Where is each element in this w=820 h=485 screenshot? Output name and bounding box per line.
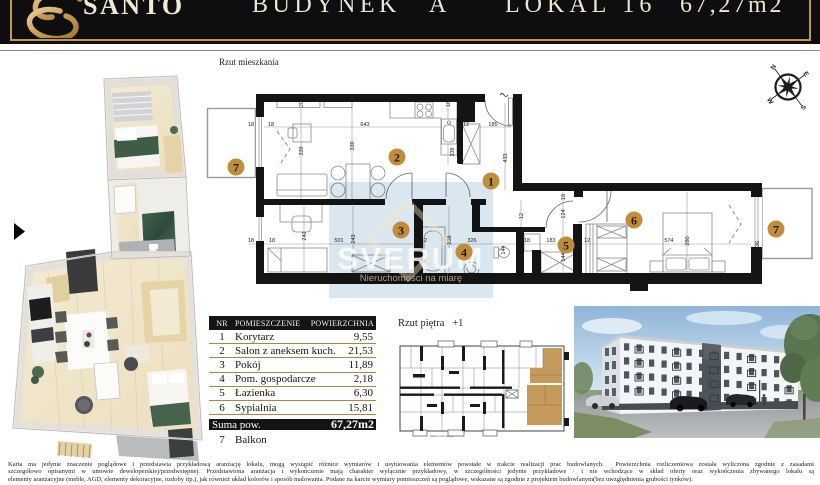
svg-text:5: 5 (563, 239, 569, 253)
svg-text:3: 3 (398, 224, 404, 238)
svg-text:12: 12 (519, 213, 525, 219)
svg-text:574: 574 (664, 238, 673, 244)
svg-text:339: 339 (350, 141, 356, 150)
svg-text:12: 12 (574, 238, 580, 244)
svg-text:Nieruchomości na miarę: Nieruchomości na miarę (360, 273, 462, 284)
svg-text:4: 4 (461, 246, 467, 260)
svg-text:280: 280 (685, 236, 691, 245)
svg-text:144: 144 (561, 252, 567, 261)
svg-text:E: E (801, 71, 810, 79)
svg-text:18: 18 (268, 122, 274, 128)
svg-text:20: 20 (299, 101, 305, 107)
svg-text:klatka schodowa: klatka schodowa (430, 434, 454, 438)
svg-text:339: 339 (299, 146, 305, 155)
svg-text:183: 183 (546, 238, 555, 244)
svg-text:2: 2 (394, 151, 400, 165)
svg-text:W: W (765, 97, 775, 107)
svg-text:18: 18 (524, 238, 530, 244)
svg-text:36: 36 (755, 241, 761, 247)
svg-text:242: 242 (302, 231, 308, 240)
svg-text:1: 1 (488, 175, 494, 189)
svg-text:18: 18 (248, 238, 254, 244)
svg-text:7: 7 (233, 161, 239, 175)
svg-text:12: 12 (584, 238, 590, 244)
svg-text:18: 18 (446, 101, 452, 107)
svg-text:643: 643 (360, 122, 369, 128)
svg-text:124: 124 (561, 209, 567, 218)
svg-text:18: 18 (561, 194, 567, 200)
svg-text:185: 185 (488, 122, 497, 128)
svg-text:18: 18 (269, 238, 275, 244)
svg-text:7: 7 (773, 223, 779, 237)
svg-text:6: 6 (631, 214, 637, 228)
svg-text:S: S (800, 103, 809, 111)
svg-text:144: 144 (501, 245, 507, 254)
svg-text:433: 433 (503, 153, 509, 162)
svg-text:12: 12 (463, 122, 469, 128)
svg-text:N: N (770, 63, 779, 71)
svg-text:18: 18 (248, 122, 254, 128)
svg-text:339: 339 (450, 147, 456, 156)
